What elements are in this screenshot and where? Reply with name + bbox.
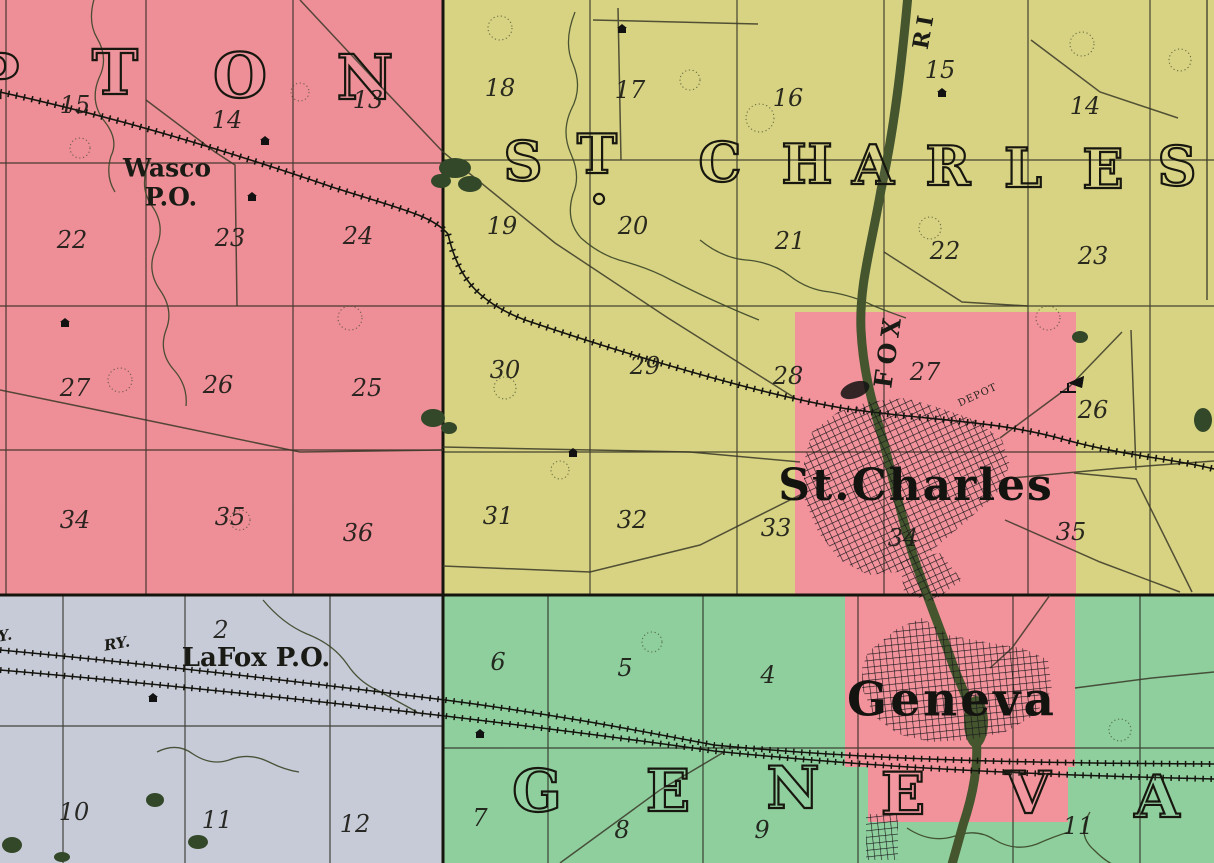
section-number: 15 (60, 93, 91, 117)
lafox-po-label: LaFox P.O. (182, 645, 331, 671)
section-number: 35 (1056, 520, 1087, 544)
township-name-letter-campton: T (92, 42, 138, 104)
section-number: 26 (1078, 398, 1109, 422)
section-number: 33 (761, 516, 792, 540)
section-number: 30 (490, 358, 521, 382)
section-number: 27 (60, 376, 91, 400)
section-number: 12 (340, 812, 371, 836)
township-name-letter-st-charles: S (504, 134, 543, 188)
section-number: 6 (490, 650, 505, 674)
township-name-letter-campton: O (213, 45, 267, 107)
section-number: 19 (487, 214, 518, 238)
section-number: 13 (353, 88, 384, 112)
township-name-letter-st-charles: . (590, 157, 609, 211)
railway-label: RY. (103, 634, 131, 653)
township-name-letter-st-charles: L (1004, 141, 1042, 195)
section-number: 29 (630, 354, 661, 378)
section-number: 14 (1070, 94, 1101, 118)
township-name-letter-st-charles: S (1158, 139, 1197, 193)
section-number: 16 (773, 86, 804, 110)
township-name-letter-st-charles: A (852, 138, 894, 192)
fox-river-label: FOX (870, 310, 905, 389)
township-name-letter-geneva: V (1005, 764, 1050, 822)
map-canvas: PTONST.CHARLESGENEVASt.CharlesGenevaWasc… (0, 0, 1214, 863)
section-number: 26 (203, 373, 234, 397)
section-number: 14 (212, 108, 243, 132)
section-number: 25 (352, 376, 383, 400)
township-name-letter-campton: P (0, 46, 19, 108)
section-number: 21 (775, 229, 806, 253)
section-number: 24 (343, 224, 374, 248)
section-number: 5 (617, 656, 632, 680)
section-number: 22 (57, 228, 88, 252)
wasco-po-label-line1: Wasco (123, 156, 211, 181)
section-number: 36 (343, 521, 374, 545)
section-number: 34 (60, 508, 91, 532)
township-name-letter-geneva: E (881, 765, 925, 823)
section-number: 11 (202, 808, 233, 832)
river-label-partial: RI (910, 9, 938, 51)
section-number: 2 (213, 618, 228, 642)
section-number: 4 (760, 663, 775, 687)
section-number: 20 (618, 214, 649, 238)
city-label-geneva: Geneva (847, 677, 1057, 724)
section-number: 9 (754, 818, 769, 842)
map-labels: PTONST.CHARLESGENEVASt.CharlesGenevaWasc… (0, 0, 1214, 863)
railway-label-partial: Y. (0, 627, 13, 644)
section-number: 23 (1078, 244, 1109, 268)
wasco-po-label-line2: P.O. (145, 185, 197, 210)
township-name-letter-st-charles: H (781, 137, 832, 191)
township-name-letter-st-charles: C (699, 135, 742, 189)
section-number: 10 (59, 800, 90, 824)
section-number: 23 (215, 226, 246, 250)
township-name-letter-geneva: G (512, 762, 562, 820)
section-number: 31 (483, 504, 514, 528)
township-name-letter-geneva: N (766, 759, 819, 817)
section-number: 27 (910, 360, 941, 384)
section-number: 22 (930, 239, 961, 263)
section-number: 35 (215, 505, 246, 529)
township-name-letter-geneva: A (1134, 768, 1179, 826)
section-number: 8 (614, 818, 629, 842)
section-number: 18 (485, 76, 516, 100)
section-number: 7 (472, 806, 487, 830)
section-number: 11 (1063, 814, 1094, 838)
township-name-letter-st-charles: R (926, 139, 971, 193)
township-name-letter-geneva: E (646, 762, 690, 820)
section-number: 17 (615, 78, 646, 102)
section-number: 15 (925, 58, 956, 82)
section-number: 28 (773, 364, 804, 388)
city-label-st-charles: St.Charles (778, 464, 1054, 508)
depot-label: DEPOT (957, 383, 999, 410)
section-number: 32 (617, 508, 648, 532)
section-number: 34 (888, 526, 919, 550)
township-name-letter-st-charles: E (1082, 142, 1123, 196)
